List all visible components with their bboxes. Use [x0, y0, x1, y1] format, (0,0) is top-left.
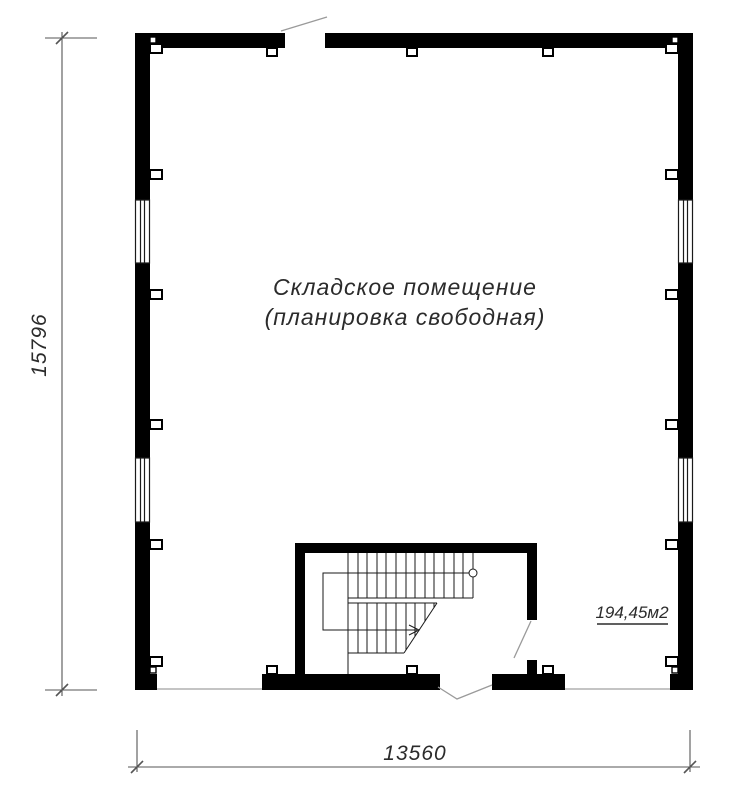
column-mark — [666, 290, 678, 299]
windows — [136, 200, 693, 522]
column-mark — [267, 48, 277, 56]
corner-notch — [150, 37, 156, 43]
wall-bottom-segment-3 — [492, 674, 565, 690]
column-mark — [666, 540, 678, 549]
corner-notch — [672, 37, 678, 43]
stair-break-line — [404, 603, 437, 653]
column-mark — [267, 666, 277, 674]
column-mark — [407, 48, 417, 56]
column-mark — [150, 290, 162, 299]
stairwell-wall-top — [295, 543, 537, 553]
stairwell-walls — [295, 543, 537, 674]
wall-left-segment-2 — [135, 263, 150, 458]
dimension-left-value: 15796 — [28, 313, 51, 376]
doors-and-gates — [157, 17, 670, 699]
window-left-lower — [136, 458, 150, 522]
top-door-leaf — [281, 17, 327, 31]
room-label-line2: (планировка свободная) — [265, 304, 546, 330]
area-label: 194,45м2 — [595, 603, 669, 624]
column-mark — [666, 170, 678, 179]
wall-right-segment-1 — [678, 33, 693, 200]
room-label: Складское помещение (планировка свободна… — [265, 274, 546, 330]
stair-upper-treads — [358, 553, 463, 598]
staircase — [323, 553, 477, 674]
column-mark — [407, 666, 417, 674]
wall-right-segment-2 — [678, 263, 693, 458]
column-mark — [150, 540, 162, 549]
stairwell-wall-left — [295, 543, 305, 674]
dimension-left — [45, 32, 97, 696]
stair-start-circle — [469, 569, 477, 577]
wall-bottom-segment-2 — [262, 674, 440, 690]
stairwell — [295, 543, 537, 674]
column-mark — [150, 170, 162, 179]
corner-notch — [672, 667, 678, 673]
column-mark — [150, 44, 162, 53]
column-mark — [666, 44, 678, 53]
wall-right-segment-3 — [678, 522, 693, 690]
column-mark — [150, 420, 162, 429]
column-mark — [666, 657, 678, 666]
column-marks — [150, 37, 678, 674]
bottom-door-swing — [438, 685, 492, 699]
room-label-line1: Складское помещение — [273, 274, 537, 300]
column-mark — [543, 48, 553, 56]
window-right-upper — [679, 200, 693, 263]
floor-plan-drawing: 15796 13560 Складское помещение (планиро… — [0, 0, 743, 800]
stairwell-door-leaf — [514, 621, 531, 658]
window-right-lower — [679, 458, 693, 522]
stair-lower-treads — [358, 603, 434, 653]
corner-notch — [150, 667, 156, 673]
area-label-value: 194,45м2 — [595, 603, 669, 622]
window-left-upper — [136, 200, 150, 263]
column-mark — [666, 420, 678, 429]
column-mark — [543, 666, 553, 674]
outer-walls — [135, 33, 693, 690]
dimension-bottom-value: 13560 — [383, 742, 446, 765]
wall-left-segment-1 — [135, 33, 150, 200]
floor-plan-sheet: 15796 13560 Складское помещение (планиро… — [0, 0, 743, 800]
stairwell-wall-right-stub — [527, 660, 537, 674]
wall-left-segment-3 — [135, 522, 150, 690]
column-mark — [150, 657, 162, 666]
stairwell-wall-right-upper — [527, 543, 537, 620]
wall-top-right-segment — [325, 33, 693, 48]
